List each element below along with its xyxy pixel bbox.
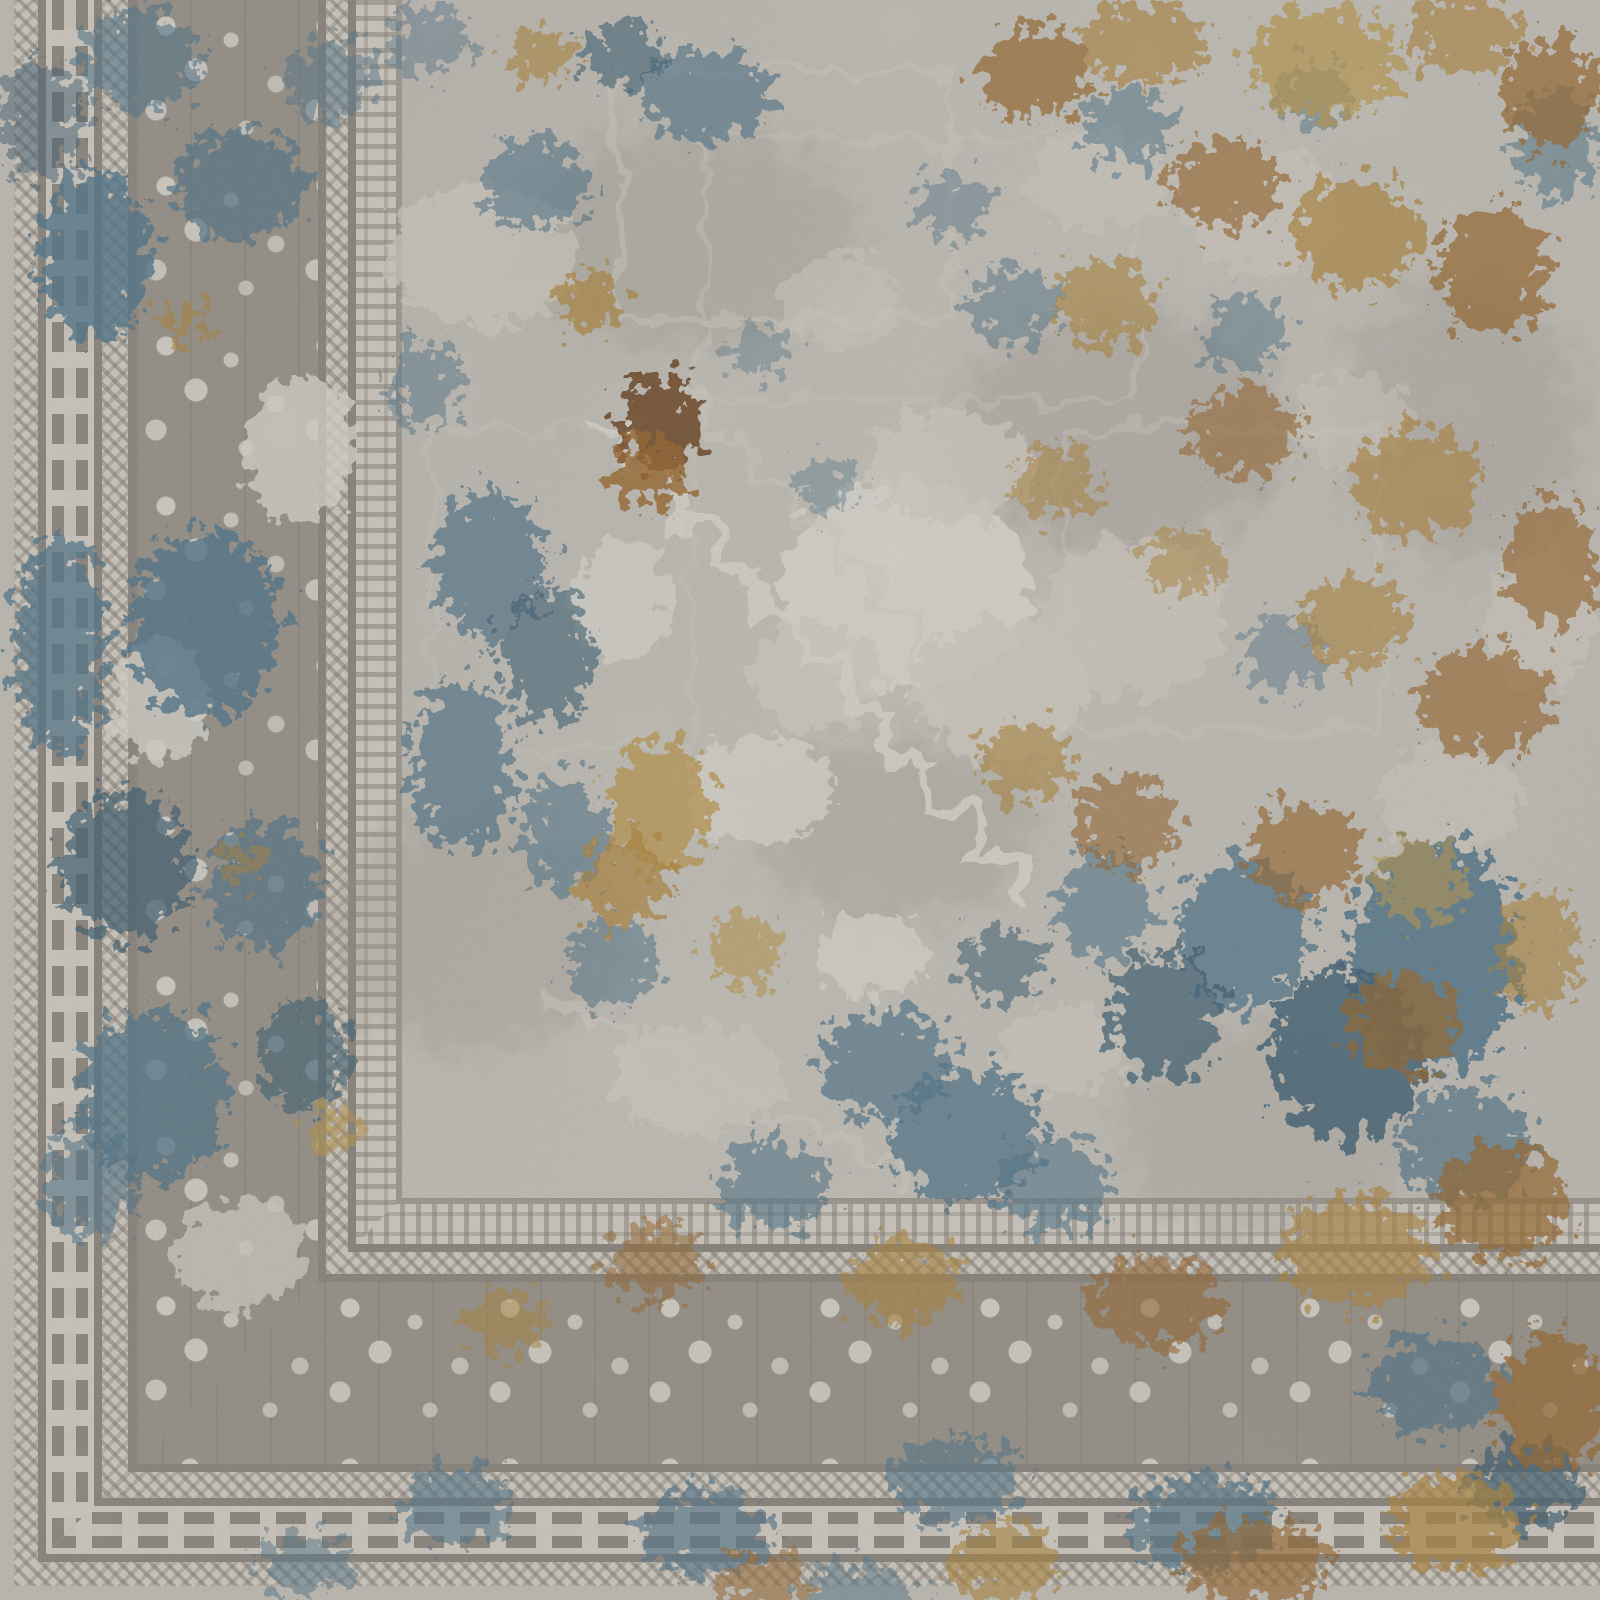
border-band-line [0, 1554, 1600, 1562]
border-band-line [128, 0, 136, 1600]
border-band-key [0, 1506, 1600, 1554]
border-band-zig [102, 0, 128, 1600]
border-band-line [0, 1464, 1600, 1472]
border-band-line [0, 1498, 1600, 1506]
border-band-zig [0, 1562, 1600, 1586]
border-band-selvage [0, 0, 14, 1600]
border-band-key [46, 0, 94, 1600]
border-band-line [38, 0, 46, 1600]
border-band-line [94, 0, 102, 1600]
border-band-zig [0, 1472, 1600, 1498]
border-band-zig [14, 0, 38, 1600]
rug-field [402, 0, 1600, 1198]
rug-photo [0, 0, 1600, 1600]
border-band-selvage [0, 1586, 1600, 1600]
